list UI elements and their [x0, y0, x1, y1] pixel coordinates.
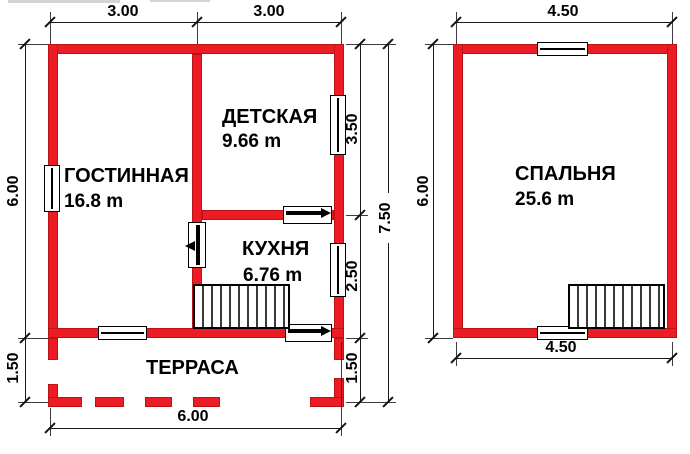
- window-glass-line: [51, 168, 53, 209]
- window-living-bottom: [98, 326, 147, 340]
- dim-line-bottom-right: [456, 358, 672, 359]
- door-leaf: [288, 329, 324, 333]
- extension-line: [50, 408, 51, 436]
- dim-label-f1-total-height: 7.50: [378, 193, 394, 243]
- dim-label-f2-top: 4.50: [538, 4, 588, 20]
- f2-wall-left: [453, 44, 463, 338]
- extension-line: [672, 12, 673, 44]
- dim-label-f1-left-main: 6.00: [6, 166, 22, 216]
- door-leaf: [196, 225, 200, 265]
- window-living-left: [44, 165, 60, 212]
- door-kitchen-terrace: [285, 324, 332, 342]
- room-area-bedroom: 25.6 m: [515, 189, 574, 211]
- dim-label-f1-top-right: 3.00: [244, 4, 294, 20]
- terrace-wall-dash: [145, 397, 172, 407]
- room-label-living: ГОСТИННАЯ: [64, 165, 189, 188]
- window-glass-line: [337, 98, 339, 152]
- terrace-wall-left-corner-h: [48, 397, 82, 407]
- door-swing-arrow: [321, 208, 331, 218]
- window-glass-line: [337, 246, 339, 294]
- dim-line-bottom-left: [50, 428, 341, 429]
- dim-label-f1-mid-kitchen: 2.50: [345, 251, 361, 301]
- door-living-kitchen: [188, 222, 206, 268]
- extension-line: [50, 12, 51, 44]
- dim-line-f2-left-chain: [433, 44, 434, 338]
- room-label-kitchen: КУХНЯ: [242, 238, 309, 261]
- room-label-children: ДЕТСКАЯ: [222, 106, 317, 129]
- dim-label-f1-left-terrace: 1.50: [6, 343, 22, 393]
- room-area-living: 16.8 m: [64, 191, 123, 213]
- window-glass-line: [101, 332, 144, 334]
- terrace-wall-left-stub: [48, 338, 58, 360]
- top-edge-artifact: [8, 0, 120, 3]
- dim-label-f1-mid-terrace: 1.50: [345, 343, 361, 393]
- terrace-wall-right-corner-h: [310, 397, 344, 407]
- window-bedroom-top: [537, 42, 588, 56]
- window-glass-line: [540, 48, 585, 50]
- room-label-terrace: ТЕРРАСА: [146, 357, 239, 380]
- room-area-children: 9.66 m: [222, 131, 281, 153]
- door-children-kitchen: [283, 206, 332, 224]
- door-leaf: [286, 211, 324, 215]
- window-glass-line: [540, 332, 585, 334]
- dim-label-f2-bottom: 4.50: [536, 340, 586, 356]
- stairs-floor2: [568, 284, 665, 329]
- door-swing-arrow: [321, 326, 331, 336]
- f1-wall-top: [48, 44, 344, 54]
- f2-wall-right: [667, 44, 677, 338]
- dim-label-f1-bottom: 6.00: [168, 409, 218, 425]
- dim-label-f1-top-left: 3.00: [98, 4, 148, 20]
- extension-line: [341, 342, 342, 436]
- terrace-wall-dash: [193, 397, 220, 407]
- dim-label-f1-mid-children: 3.50: [345, 104, 361, 154]
- room-label-bedroom: СПАЛЬНЯ: [515, 163, 616, 186]
- extension-line: [197, 12, 198, 44]
- door-swing-arrow: [185, 241, 195, 251]
- floor-plan-canvas: 3.00 3.00 4.50 6.00 4.50 6.00 1.50 3.50 …: [0, 0, 690, 454]
- terrace-wall-dash: [95, 397, 124, 407]
- dim-line-left-chain: [25, 44, 26, 402]
- stairs-floor1: [193, 284, 290, 329]
- extension-line: [456, 12, 457, 44]
- top-edge-artifact: [150, 0, 210, 2]
- dim-line-top-right: [456, 22, 672, 23]
- room-area-kitchen: 6.76 m: [243, 265, 302, 287]
- dim-label-f2-left: 6.00: [416, 166, 432, 216]
- terrace-wall-right-stub: [334, 338, 344, 360]
- extension-line: [341, 12, 342, 44]
